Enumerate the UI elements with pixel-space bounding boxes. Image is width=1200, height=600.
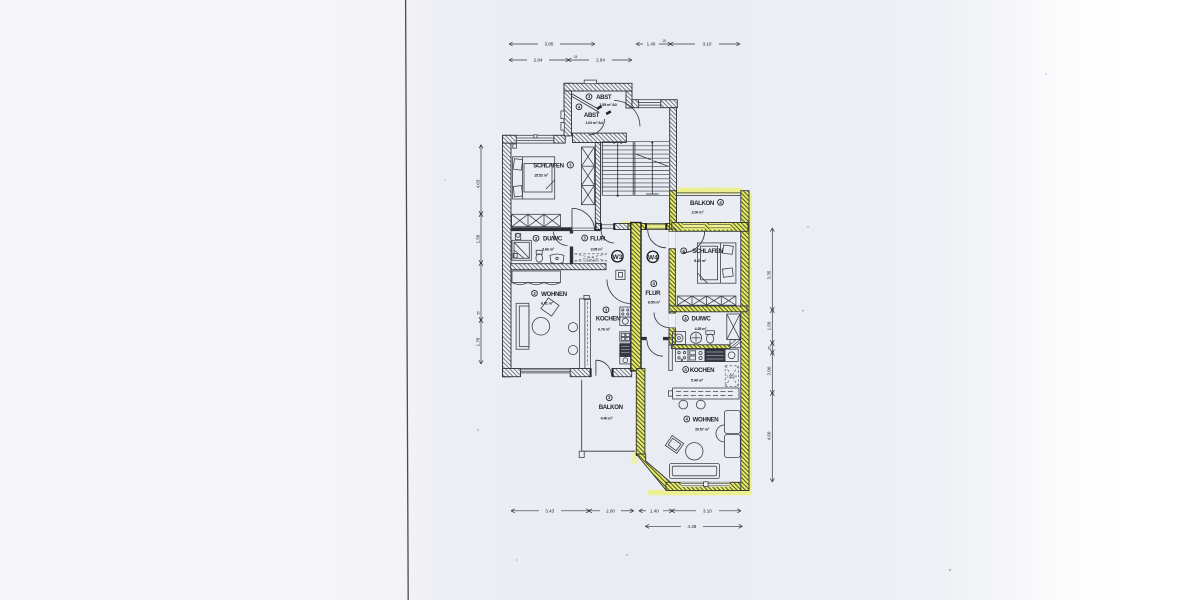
svg-text:3.85: 3.85 (545, 42, 554, 47)
svg-text:3: 3 (588, 94, 591, 99)
svg-text:15: 15 (574, 55, 578, 59)
svg-text:FLUR: FLUR (645, 290, 661, 297)
svg-text:35: 35 (768, 346, 772, 350)
svg-text:4.03: 4.03 (475, 179, 480, 188)
svg-text:3.05 m²: 3.05 m² (590, 247, 603, 252)
svg-text:ABST: ABST (596, 94, 612, 101)
svg-text:1.55 m² A3: 1.55 m² A3 (599, 102, 617, 107)
svg-text:BALKON: BALKON (599, 404, 623, 411)
svg-text:4: 4 (653, 281, 656, 286)
svg-text:DU/WC: DU/WC (692, 316, 712, 323)
svg-text:ABST: ABST (584, 112, 600, 119)
svg-text:1.58: 1.58 (475, 234, 480, 243)
svg-text:3.35: 3.35 (767, 270, 772, 279)
svg-text:4: 4 (578, 104, 581, 109)
svg-text:35: 35 (476, 311, 480, 315)
svg-text:4.38: 4.38 (688, 524, 697, 529)
svg-text:6.91 m²: 6.91 m² (541, 300, 554, 305)
svg-text:WOHNEN: WOHNEN (541, 291, 567, 298)
svg-text:3: 3 (535, 236, 538, 241)
svg-text:20.57 m²: 20.57 m² (695, 427, 710, 432)
svg-text:2.00: 2.00 (606, 508, 615, 513)
svg-text:15: 15 (662, 39, 666, 43)
svg-text:KOCHEN: KOCHEN (690, 367, 714, 374)
svg-text:2.84: 2.84 (534, 58, 543, 63)
svg-text:4.60: 4.60 (767, 431, 772, 440)
svg-text:15.52 m²: 15.52 m² (534, 173, 549, 178)
svg-text:1.40: 1.40 (647, 42, 656, 47)
svg-text:5.40 m²: 5.40 m² (691, 378, 704, 383)
svg-text:4.35 m²: 4.35 m² (694, 326, 707, 331)
svg-text:1.40: 1.40 (650, 508, 659, 513)
svg-text:W3: W3 (612, 254, 622, 261)
svg-text:2.84: 2.84 (596, 58, 605, 63)
svg-text:8.47 m²: 8.47 m² (694, 258, 707, 263)
svg-text:1.02 m² A4: 1.02 m² A4 (585, 120, 603, 125)
svg-text:SCHLAFEN: SCHLAFEN (692, 248, 722, 255)
svg-text:3: 3 (608, 395, 611, 400)
svg-text:W4: W4 (648, 255, 658, 262)
svg-text:3.66 m²: 3.66 m² (542, 247, 555, 252)
svg-text:2.00: 2.00 (767, 366, 772, 375)
svg-text:3.10: 3.10 (703, 508, 712, 513)
svg-text:4: 4 (719, 200, 722, 205)
svg-text:2.00 m²: 2.00 m² (691, 210, 704, 215)
svg-text:FLUR: FLUR (590, 236, 606, 243)
svg-text:4: 4 (686, 416, 689, 421)
svg-text:SCHLAFEN: SCHLAFEN (533, 162, 563, 169)
svg-text:WOHNEN: WOHNEN (693, 416, 719, 423)
svg-text:3.43: 3.43 (545, 508, 554, 513)
svg-text:KOCHEN: KOCHEN (596, 316, 620, 323)
svg-text:0.70 m²: 0.70 m² (586, 258, 597, 262)
svg-text:3.10: 3.10 (703, 42, 712, 47)
svg-text:8.50 m²: 8.50 m² (648, 300, 661, 305)
svg-text:DU/WC: DU/WC (543, 236, 563, 243)
svg-text:1.02 m²: 1.02 m² (726, 375, 737, 379)
svg-text:BALKON: BALKON (690, 200, 714, 207)
svg-text:4.40 m²: 4.40 m² (600, 416, 613, 421)
svg-text:3: 3 (533, 291, 536, 296)
svg-text:4: 4 (685, 367, 688, 372)
svg-text:3: 3 (605, 307, 608, 312)
svg-text:3: 3 (569, 162, 572, 167)
svg-text:1.50: 1.50 (767, 321, 772, 330)
svg-text:4: 4 (684, 316, 687, 321)
svg-text:3: 3 (584, 235, 587, 240)
svg-text:6.76 m²: 6.76 m² (598, 327, 611, 332)
svg-text:1.78: 1.78 (475, 337, 480, 346)
